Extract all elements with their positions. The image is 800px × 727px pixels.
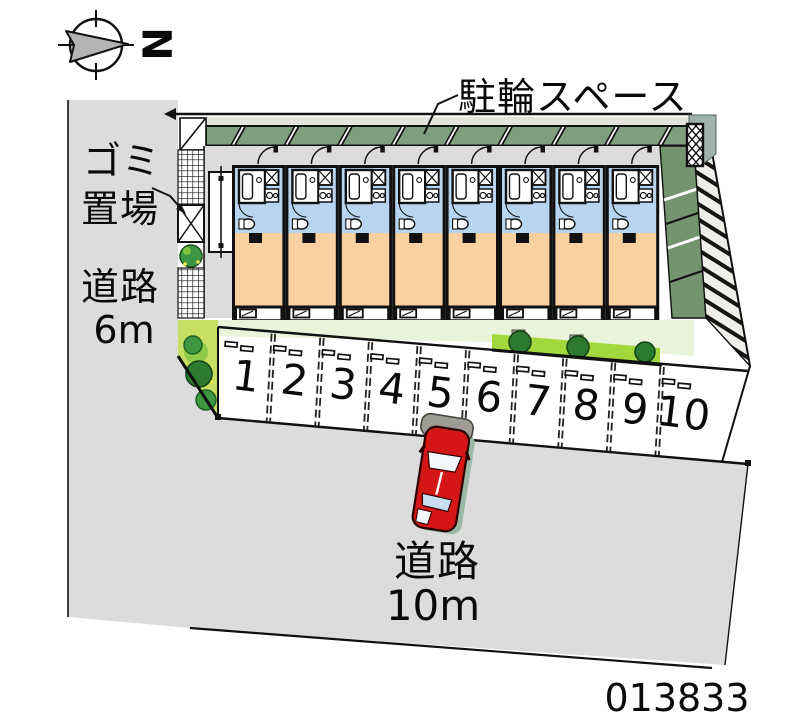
plan-id-label: 013833 bbox=[604, 676, 749, 720]
shrub-highlight bbox=[183, 247, 191, 255]
wheel-stop bbox=[662, 379, 674, 385]
entry-stair bbox=[209, 166, 233, 258]
room-notch bbox=[409, 233, 422, 243]
road-left-label-line1: 道路 bbox=[81, 265, 159, 309]
compass-north-label: N bbox=[133, 27, 179, 60]
hedge-bush bbox=[567, 336, 589, 358]
wheel-stop bbox=[322, 350, 334, 356]
bathtub bbox=[616, 174, 626, 199]
door-leaf bbox=[327, 146, 332, 153]
bathtub bbox=[349, 174, 359, 199]
wheel-stop bbox=[565, 371, 577, 377]
wheel-stop bbox=[419, 358, 431, 364]
wheel-stop bbox=[517, 366, 529, 372]
road-bottom-label-line1: 道路 bbox=[394, 537, 480, 586]
parking-space: 9 bbox=[614, 375, 651, 436]
bathtub bbox=[456, 174, 466, 199]
bathtub bbox=[243, 174, 253, 199]
parking-space-number: 1 bbox=[230, 350, 263, 402]
apartment-unit bbox=[552, 146, 605, 321]
shrub-flower bbox=[196, 260, 200, 264]
wheel-stop bbox=[225, 342, 237, 348]
parking-space: 8 bbox=[565, 371, 602, 432]
hedge-bush bbox=[635, 342, 655, 362]
door-leaf bbox=[647, 146, 652, 153]
fence-hatch-upper bbox=[178, 150, 204, 205]
shrub-flower bbox=[183, 262, 187, 266]
compass: N bbox=[58, 10, 179, 80]
fence-hatch-lower bbox=[178, 268, 204, 318]
room-notch bbox=[516, 233, 529, 243]
bathtub bbox=[296, 174, 306, 199]
apartment-unit bbox=[232, 146, 285, 321]
parking-space: 5 bbox=[419, 358, 456, 419]
door-leaf bbox=[380, 146, 385, 153]
parking-space: 4 bbox=[371, 354, 408, 415]
parking-space-number: 7 bbox=[521, 375, 554, 427]
road-left-label-line2: 6m bbox=[93, 308, 154, 352]
parking-space: 7 bbox=[517, 366, 554, 427]
parking-space-number: 2 bbox=[278, 354, 311, 406]
door-leaf bbox=[487, 146, 492, 153]
parking-space: 6 bbox=[468, 362, 505, 423]
door-leaf bbox=[274, 146, 279, 153]
apartment-unit bbox=[499, 146, 552, 321]
wheel-stop bbox=[371, 354, 383, 360]
utility-box bbox=[687, 124, 703, 166]
parking-space-number: 6 bbox=[473, 371, 506, 423]
door-leaf bbox=[434, 146, 439, 153]
apartment-unit bbox=[392, 146, 445, 321]
apartment-unit bbox=[285, 146, 338, 321]
bathtub bbox=[510, 174, 520, 199]
parking-space: 10 bbox=[654, 379, 713, 441]
flower bbox=[210, 380, 214, 384]
room-notch bbox=[623, 233, 636, 243]
parking-space-number: 4 bbox=[376, 363, 409, 415]
site-plan-map: 12345678910 N 駐輪スペース ゴミ 置場 道路 6m 道路 10m … bbox=[0, 0, 800, 727]
parking-space-number: 5 bbox=[424, 367, 457, 419]
bathtub bbox=[563, 174, 573, 199]
parking-space: 1 bbox=[225, 342, 262, 403]
parking-space-number: 9 bbox=[619, 383, 652, 435]
left-fence-column bbox=[178, 150, 204, 318]
tree bbox=[184, 336, 202, 354]
parking-space-number: 3 bbox=[327, 358, 360, 410]
apartment-unit bbox=[446, 146, 499, 321]
parking-space: 3 bbox=[322, 350, 359, 411]
parking-space-number: 8 bbox=[570, 379, 603, 431]
garbage-label-line1: ゴミ bbox=[83, 139, 161, 183]
door-leaf bbox=[541, 146, 546, 153]
bicycle-space-label: 駐輪スペース bbox=[458, 75, 687, 119]
wheel-stop bbox=[468, 362, 480, 368]
room-notch bbox=[302, 233, 315, 243]
wheel-stop bbox=[614, 375, 626, 381]
road-bottom-label-line2: 10m bbox=[386, 581, 480, 630]
room-notch bbox=[569, 233, 582, 243]
site-plan-page: 12345678910 N 駐輪スペース ゴミ 置場 道路 6m 道路 10m … bbox=[0, 0, 800, 727]
apartment-unit bbox=[606, 146, 659, 321]
room-notch bbox=[356, 233, 369, 243]
room-notch bbox=[463, 233, 476, 243]
parking-space-number: 10 bbox=[654, 386, 713, 441]
apartment-unit bbox=[339, 146, 392, 321]
wheel-stop bbox=[274, 346, 286, 352]
garbage-label-line2: 置場 bbox=[81, 187, 159, 231]
bathtub bbox=[403, 174, 413, 199]
parking-space: 2 bbox=[274, 346, 311, 407]
apartment-units bbox=[232, 146, 659, 321]
hedge-bush bbox=[509, 331, 531, 353]
door-leaf bbox=[594, 146, 599, 153]
room-notch bbox=[249, 233, 262, 243]
